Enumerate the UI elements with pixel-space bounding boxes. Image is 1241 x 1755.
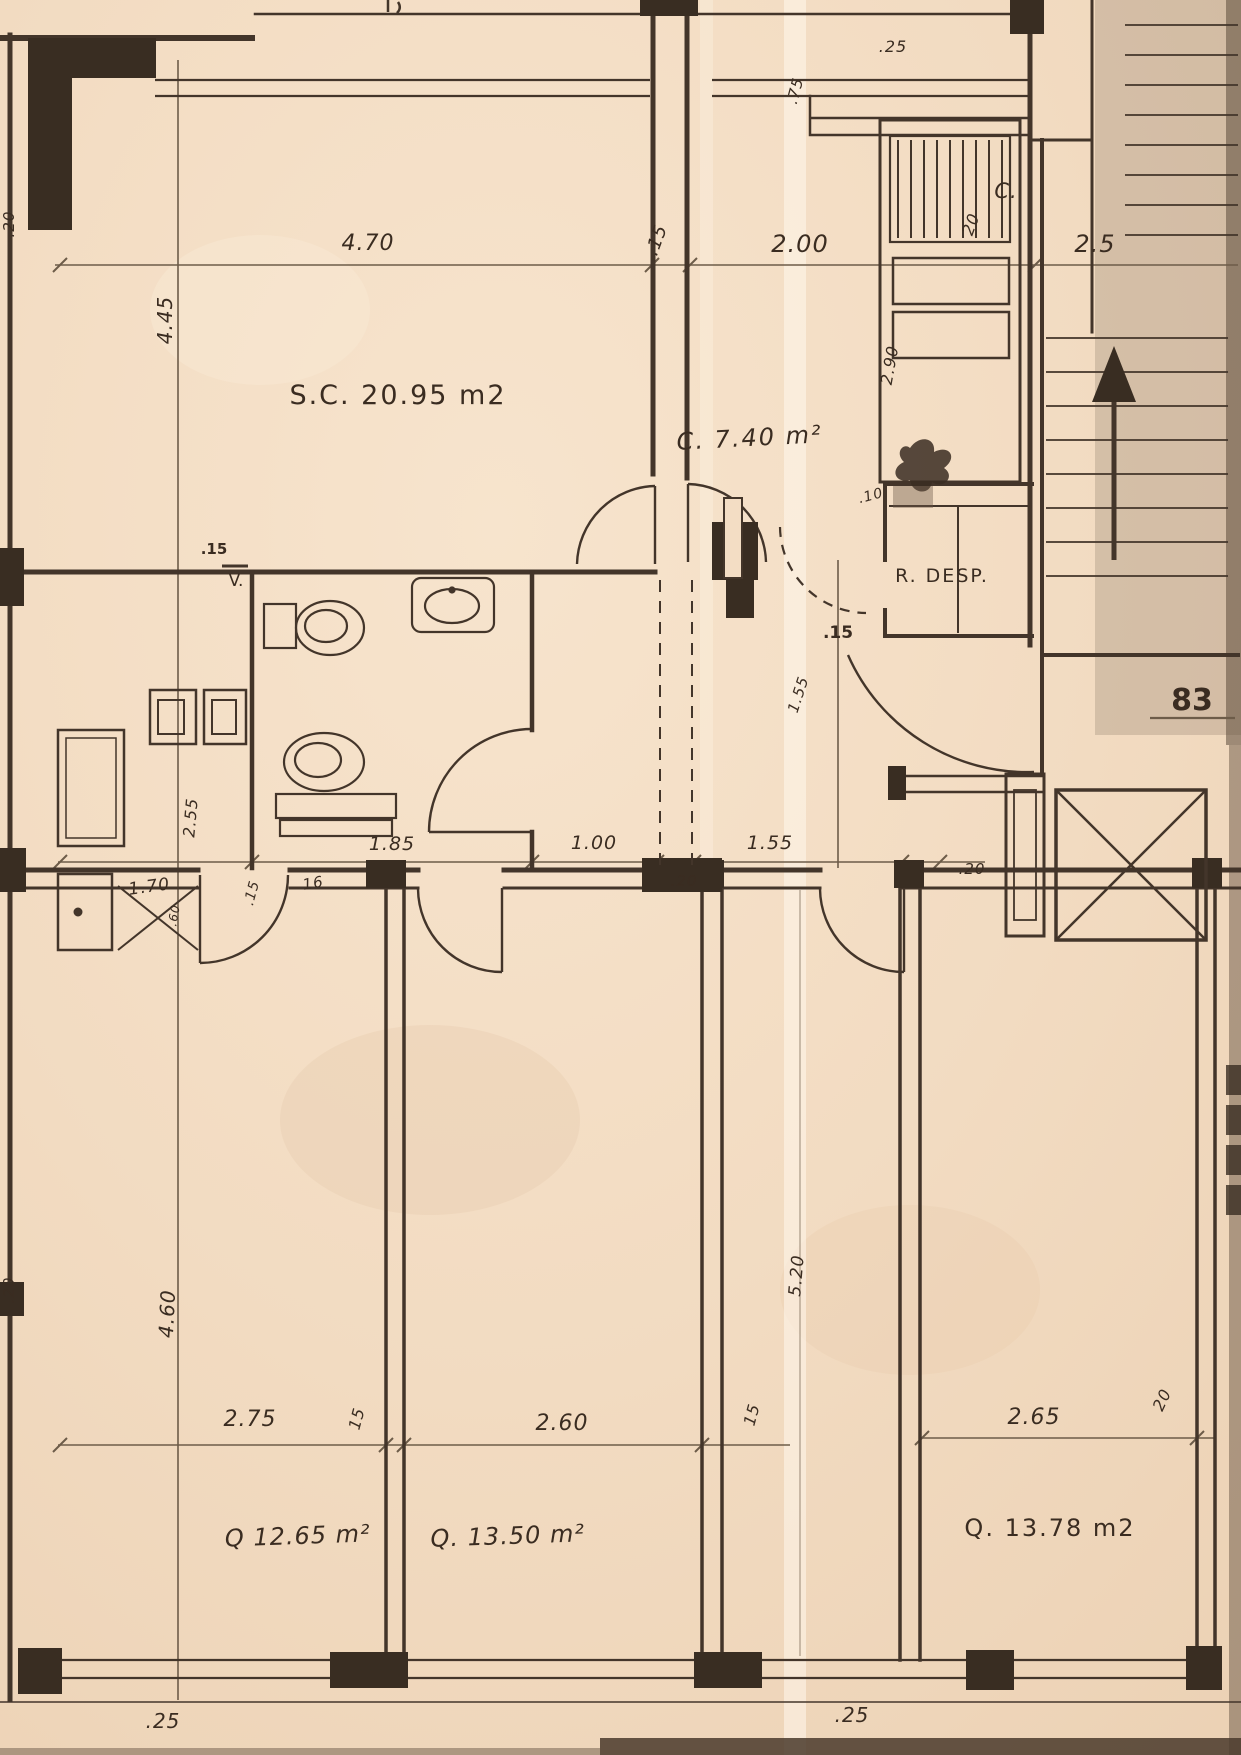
- dim-20-mid-b: .20: [959, 860, 986, 878]
- pier: [694, 1652, 762, 1688]
- dim-20-left-top: .20: [0, 211, 18, 238]
- dim-hall-height: 5.20: [785, 1254, 809, 1297]
- dim-living-width: 4.70: [342, 231, 395, 256]
- stain: [150, 235, 370, 385]
- door-pier: [726, 580, 754, 618]
- dim-15-vent: .15: [201, 540, 228, 558]
- pier: [330, 1652, 408, 1688]
- pier: [640, 0, 698, 16]
- scan-edge: [1229, 745, 1241, 1755]
- edge-block: [1226, 1145, 1241, 1175]
- fold-light-strip: [784, 0, 806, 1755]
- pier: [0, 548, 24, 606]
- floor-plan-scan: S.C. 20.95 m2 C. 7.40 m² R. DESP. C. Q 1…: [0, 0, 1241, 1755]
- dim-hall-width: 1.00: [571, 832, 617, 854]
- dim-15-pier: .15: [823, 623, 853, 643]
- pier: [0, 848, 26, 892]
- pier: [696, 860, 724, 888]
- room-label-closet: C.: [994, 179, 1017, 203]
- dim-foyer-width: 1.55: [747, 832, 793, 854]
- vent-label: V.: [229, 571, 244, 591]
- dim-bedroom3-width: 2.65: [1008, 1405, 1061, 1430]
- pier: [28, 78, 72, 230]
- dim-living-height: 4.45: [153, 296, 177, 345]
- edge-block: [1226, 1185, 1241, 1215]
- scan-edge: [1226, 0, 1241, 745]
- dim-25-bottom-left: .25: [146, 1709, 181, 1733]
- dim-bath-height: 2.55: [179, 797, 201, 838]
- dim-20-mid-a: .20: [671, 872, 698, 890]
- room-label-bedroom3: Q. 13.78 m2: [964, 1514, 1135, 1542]
- pier: [1186, 1646, 1222, 1690]
- dim-bedroom-height: 4.60: [154, 1289, 181, 1339]
- edge-block: [1226, 1105, 1241, 1135]
- stain: [780, 1205, 1040, 1375]
- dim-20-left-bottom: .20: [0, 1277, 18, 1304]
- tap-dot: [450, 588, 455, 593]
- stain: [280, 1025, 580, 1215]
- dim-25-top: .25: [879, 37, 907, 56]
- room-label-living: S.C. 20.95 m2: [289, 380, 506, 411]
- bottom-scan-edge: [600, 1738, 1241, 1755]
- dim-kitchen-width: 2.00: [771, 230, 828, 258]
- room-label-bedroom1: Q 12.65 m²: [224, 1519, 371, 1552]
- pier: [966, 1650, 1014, 1690]
- door-leaf: [724, 498, 742, 578]
- floor-plan-svg: S.C. 20.95 m2 C. 7.40 m² R. DESP. C. Q 1…: [0, 0, 1241, 1755]
- pier: [1010, 0, 1044, 34]
- drain-dot: [74, 908, 82, 916]
- dim-bedroom1-width: 2.75: [224, 1407, 277, 1432]
- smudge: [893, 486, 933, 508]
- dim-bath-width: 1.85: [369, 833, 415, 855]
- bottom-scan-edge: [0, 1748, 600, 1755]
- dim-25-bottom-right: .25: [835, 1703, 870, 1727]
- dim-right-top: 2.5: [1074, 230, 1115, 258]
- pier: [894, 860, 924, 888]
- room-label-bedroom2: Q. 13.50 m²: [430, 1519, 585, 1552]
- pier: [18, 1648, 62, 1694]
- dim-wall-16: 16: [301, 872, 325, 893]
- pier: [28, 38, 156, 78]
- edge-block: [1226, 1065, 1241, 1095]
- pier: [888, 766, 906, 800]
- dim-bedroom2-width: 2.60: [536, 1411, 589, 1436]
- pier: [366, 860, 406, 888]
- room-label-pantry: R. DESP.: [895, 565, 989, 587]
- stair-number-label: 83: [1171, 683, 1213, 718]
